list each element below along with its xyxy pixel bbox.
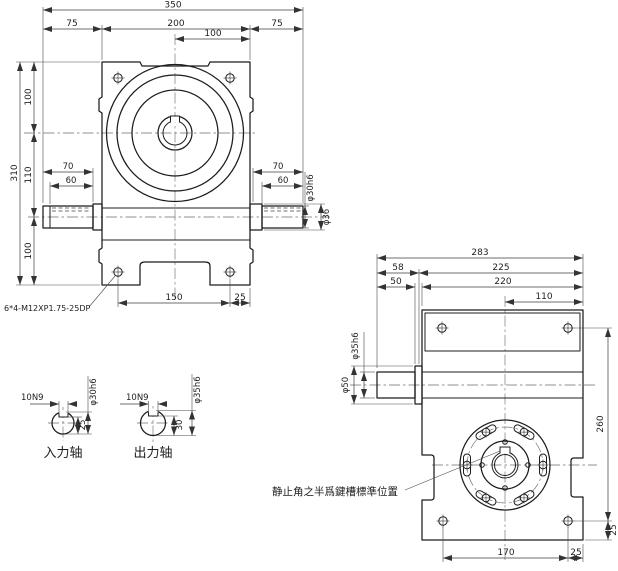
output-keyway-dim: 10N9 [126,393,149,403]
output-shaft-label: 出力轴 [133,446,172,461]
dim-h-100-top: 100 [24,88,34,105]
dim-bolt-edge: 25 [234,293,245,303]
front-bolt-holes [112,72,237,279]
bolt-hole [436,322,449,335]
dim-70-right: 70 [273,162,284,172]
dim-60-left: 60 [66,176,77,186]
dim-side-boss-dia: φ50 [341,377,351,393]
side-outline [377,310,583,540]
dim-side-58: 58 [392,263,404,273]
side-top-plate [425,313,580,351]
dim-side-shaft-dia: φ35h6 [351,332,361,359]
front-note: 6*4-M12XP1.75-25DP [4,276,115,313]
dim-overall-width: 350 [164,1,181,11]
side-housing-body [422,310,583,540]
dim-h-110: 110 [24,166,34,183]
dim-side-25-v: 25 [609,524,618,535]
dim-side-110: 110 [535,292,552,302]
dim-top-100: 100 [204,29,221,39]
front-keyway-mask [171,116,180,123]
front-view: 350 75 200 75 100 310 100 110 100 70 60 … [4,1,332,314]
dim-60-right: 60 [278,176,289,186]
side-note: 静止角之半爲鍵槽標準位置 [272,451,500,498]
technical-drawing: 350 75 200 75 100 310 100 110 100 70 60 … [0,0,618,571]
dim-side-overall: 283 [471,248,488,258]
input-shaft-section: 10N9 φ30h6 25 入力轴 [21,376,99,461]
output-shaft-section: 10N9 φ35h6 30 出力轴 [120,374,203,461]
bolt-hole [224,266,237,279]
bolt-hole [562,515,575,528]
dim-side-50: 50 [390,277,402,287]
note-keyway-position: 静止角之半爲鍵槽標準位置 [272,485,398,498]
bolt-hole [437,515,450,528]
dim-70-left: 70 [63,162,74,172]
dim-boss-dia: φ36 [322,209,332,225]
output-dia-dim: φ35h6 [193,376,203,403]
input-shaft-label: 入力轴 [43,446,82,461]
side-centerlines [350,296,598,560]
dim-side-170: 170 [497,548,514,558]
shaft-sections: 10N9 φ30h6 25 入力轴 10N9 φ35h6 30 出力轴 [21,374,203,461]
dim-side-25-h: 25 [570,548,581,558]
bolt-hole [562,322,575,335]
dim-right-75: 75 [271,19,282,29]
dim-center-200: 200 [167,19,184,29]
dim-overall-height: 310 [10,164,20,181]
dim-bolt-span: 150 [165,293,182,303]
side-view: 283 58 225 50 220 110 φ35h6 φ50 260 25 1… [272,248,618,562]
output-depth-dim: 30 [175,420,185,431]
input-keyway-dim: 10N9 [21,393,44,403]
front-dimensions: 350 75 200 75 100 310 100 110 100 70 60 … [10,1,332,308]
input-depth-dim: 25 [78,420,88,431]
side-dimensions: 283 58 225 50 220 110 φ35h6 φ50 260 25 1… [341,248,618,562]
dim-left-75: 75 [66,19,77,29]
input-dia-dim: φ30h6 [89,378,99,405]
dim-side-260: 260 [596,415,606,432]
dim-side-225: 225 [492,263,509,273]
dim-side-220: 220 [494,277,511,287]
bolt-hole [224,72,237,85]
note-tapped-holes: 6*4-M12XP1.75-25DP [4,304,90,313]
drawing-canvas: 350 75 200 75 100 310 100 110 100 70 60 … [0,0,618,571]
dim-shaft-dia: φ30h6 [306,174,316,201]
bolt-hole [112,72,125,85]
dim-h-100-bottom: 100 [24,242,34,259]
bolt-hole [112,266,125,279]
front-outline [43,62,303,285]
